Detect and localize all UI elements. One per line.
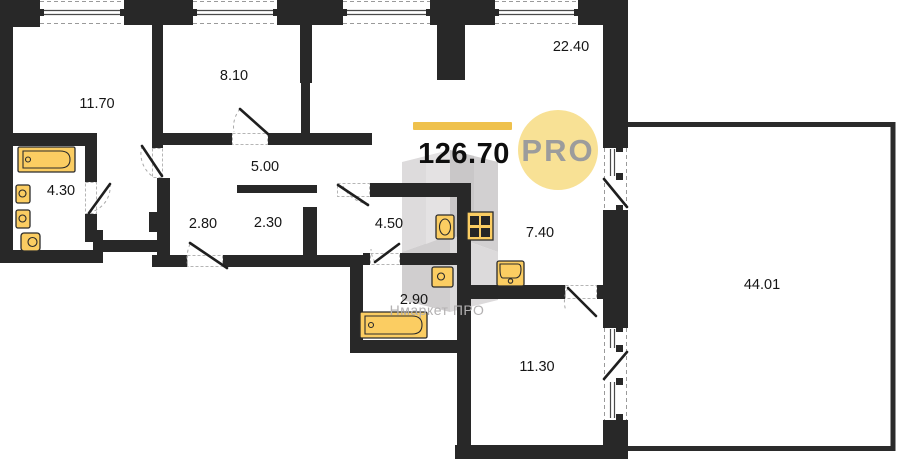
total-area-value: 126.70 (418, 138, 510, 170)
total-area-block: 126.70 (413, 122, 512, 170)
room-area-4-30: 4.30 (47, 183, 75, 199)
room-area-44-01: 44.01 (744, 277, 780, 293)
room-area-22-40: 22.40 (553, 39, 589, 55)
door-hall-4-50 (337, 183, 370, 205)
window-unit (37, 2, 127, 24)
room-area-11-70: 11.70 (79, 96, 114, 112)
toilet-symbol (21, 233, 40, 251)
floor-plan: 11.708.1022.404.305.002.802.304.507.402.… (0, 0, 900, 459)
pro-badge: PRO (518, 110, 598, 190)
sink-symbol (16, 185, 30, 203)
room-area-8-10: 8.10 (220, 68, 248, 84)
window-unit (492, 2, 581, 24)
pro-badge-label: PRO (521, 133, 594, 168)
door-bath-2-90 (370, 244, 400, 265)
stove-symbol (467, 212, 493, 240)
door-room-8-10 (232, 109, 268, 145)
window-unit (190, 2, 280, 24)
room-area-5-00: 5.00 (251, 159, 279, 175)
balcony-unit-living (604, 145, 627, 212)
kitchen-sink-symbol (497, 261, 524, 286)
window-unit (340, 2, 433, 24)
sink-symbol (432, 267, 453, 287)
balcony-unit-bedroom (604, 325, 627, 421)
door-room-11-30 (564, 285, 597, 316)
room-area-11-30: 11.30 (519, 359, 554, 375)
watermark-caption: Нмаркет ПРО (390, 302, 485, 318)
room-area-7-40: 7.40 (526, 225, 554, 241)
total-area-accent-bar (413, 122, 512, 130)
room-area-2-30: 2.30 (254, 215, 282, 231)
floor-plan-drawing: 11.708.1022.404.305.002.802.304.507.402.… (0, 0, 900, 459)
washer-symbol (436, 215, 454, 239)
balcony-door-leaf (604, 352, 627, 379)
bathtub-symbol (18, 147, 75, 172)
room-area-2-80: 2.80 (189, 216, 217, 232)
room-area-4-50: 4.50 (375, 216, 403, 232)
sink-symbol (16, 210, 30, 228)
balcony-door-leaf (604, 179, 627, 207)
door-room-11-70 (141, 146, 163, 178)
door-entrance (187, 243, 227, 268)
door-bathroom-4-30 (85, 182, 110, 214)
